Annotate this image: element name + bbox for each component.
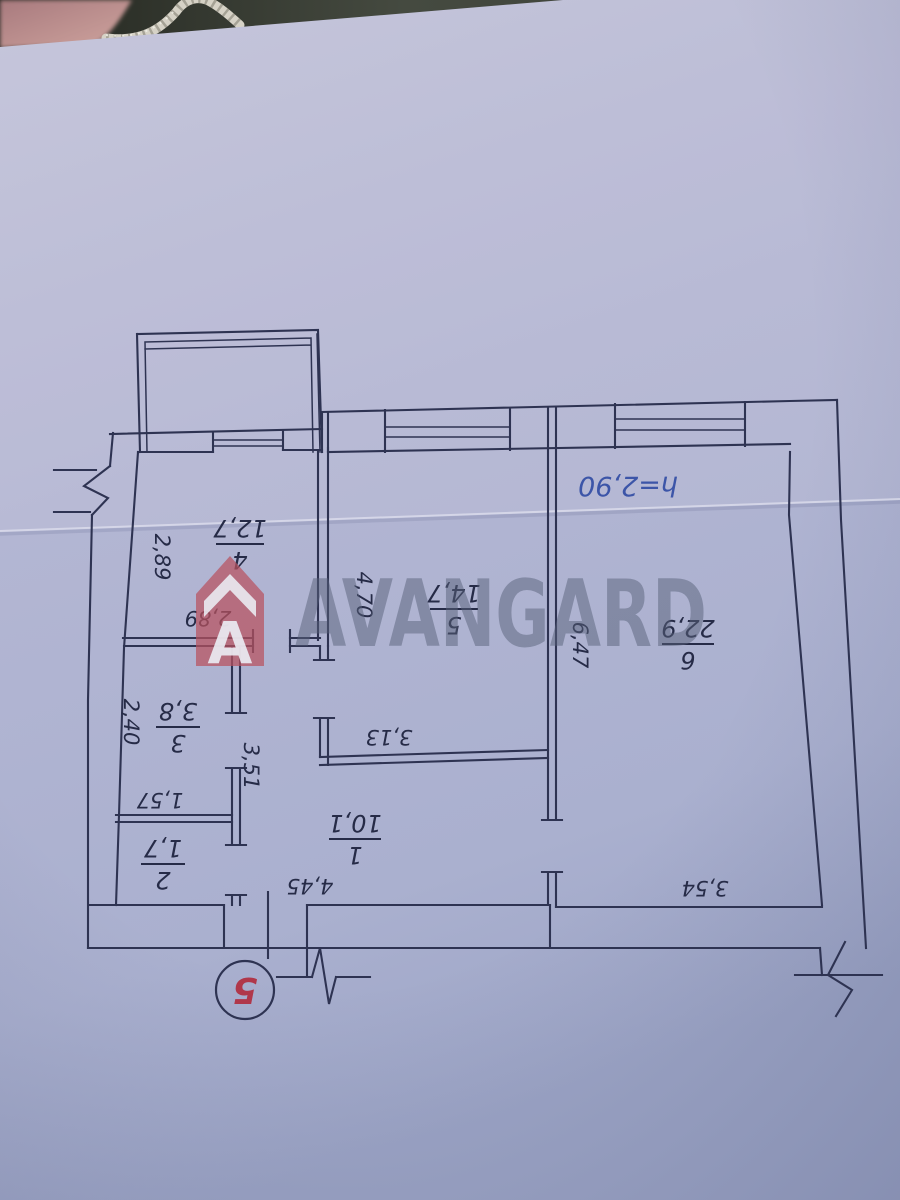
brand-name-watermark: AVANGARD bbox=[295, 560, 707, 668]
floor-plan-photo: 1 10,1 2 1,7 3 3,8 4 12,7 5 14,7 6 22,9 bbox=[0, 0, 900, 1200]
dim-room3-height: 2,40 bbox=[119, 699, 143, 746]
room-area: 3,8 bbox=[159, 697, 197, 725]
ceiling-height-note: h=2,90 bbox=[578, 470, 678, 501]
room-area: 10,1 bbox=[328, 809, 381, 837]
room-number: 1 bbox=[347, 841, 362, 869]
photographed-floor-plan: 1 10,1 2 1,7 3 3,8 4 12,7 5 14,7 6 22,9 bbox=[0, 0, 900, 1200]
room-number: 2 bbox=[155, 866, 170, 894]
dim-hall-width: 4,45 bbox=[287, 874, 334, 898]
dim-room6-width: 3,54 bbox=[682, 876, 729, 900]
room-area: 1,7 bbox=[143, 834, 182, 862]
stamp-number: 5 bbox=[232, 969, 257, 1010]
room-area: 12,7 bbox=[213, 514, 267, 542]
room-number: 3 bbox=[170, 729, 185, 757]
dim-room5-width: 3,13 bbox=[366, 725, 413, 749]
logo-letter: A bbox=[208, 609, 253, 677]
dim-room3-width: 1,57 bbox=[136, 788, 183, 812]
dim-corridor-length: 3,51 bbox=[239, 743, 263, 790]
dim-room4-height: 2,89 bbox=[150, 534, 174, 581]
